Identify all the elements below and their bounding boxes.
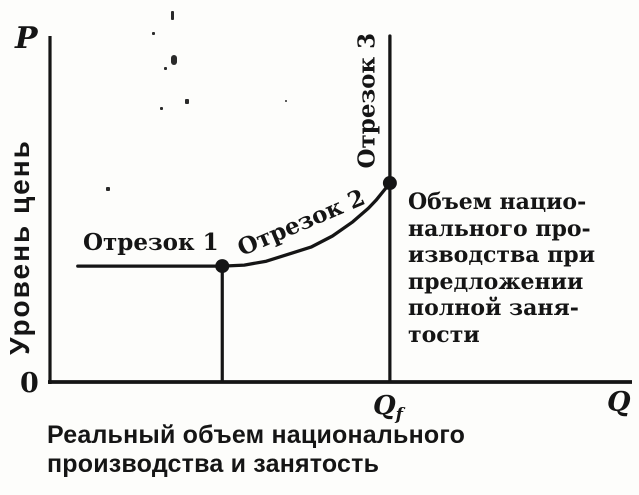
y-axis-symbol: P	[15, 21, 38, 56]
scan-speck	[171, 11, 174, 20]
supply-curve-figure: P Уровень цень Отрезок 1 Отрезок 2 Отрез…	[0, 0, 639, 495]
scan-speck	[185, 99, 189, 104]
segment-1-label: Отрезок 1	[83, 229, 219, 256]
full-employment-annotation: Объем нацио- нального про- изводства при…	[408, 189, 598, 348]
scan-speck	[106, 187, 110, 191]
scan-speck	[285, 100, 287, 102]
x-axis-symbol: Q	[607, 387, 631, 418]
segment-3-label: Отрезок 3	[354, 47, 381, 169]
curve-point-marker	[383, 176, 397, 190]
scan-speck	[171, 55, 177, 65]
qf-tick-base: Q	[373, 391, 396, 421]
y-axis-title: Уровень цень	[4, 117, 36, 377]
scan-speck	[164, 67, 167, 70]
scan-speck	[152, 32, 155, 35]
curve-point-marker	[215, 259, 229, 273]
origin-label: 0	[20, 368, 39, 399]
scan-speck	[160, 107, 163, 110]
figure-caption: Реальный объем национального производств…	[47, 421, 465, 479]
qf-tick-label: Qf	[373, 391, 403, 421]
